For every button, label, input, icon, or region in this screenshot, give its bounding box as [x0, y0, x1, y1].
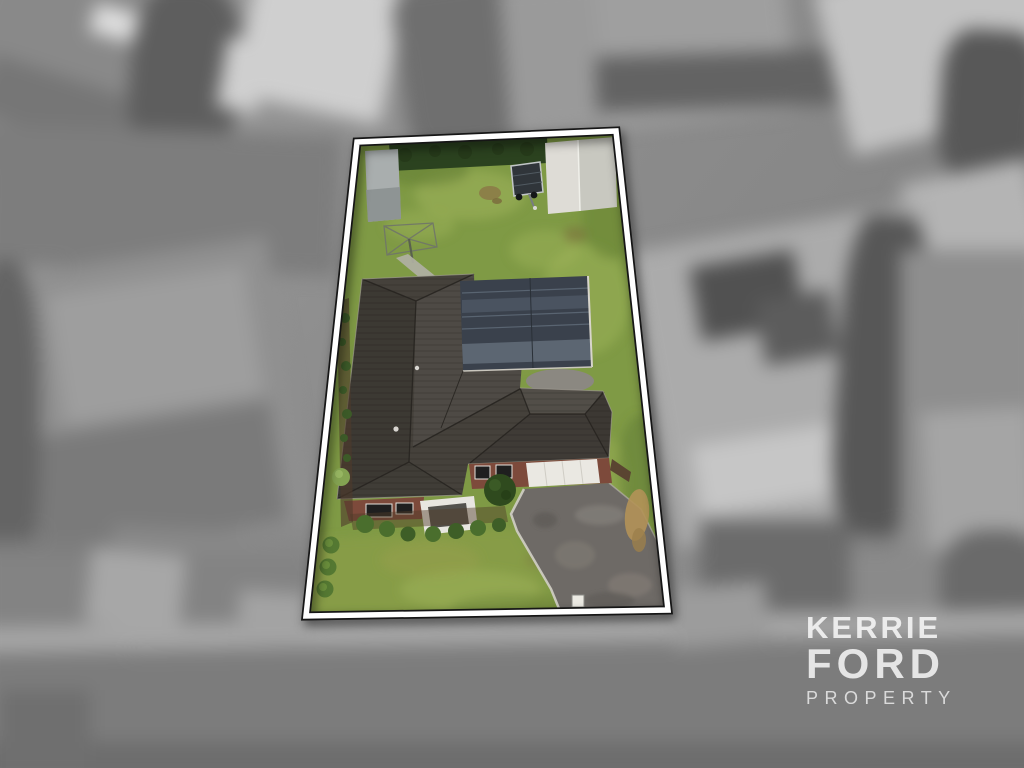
bush: [356, 515, 374, 533]
dirt-patch: [492, 198, 502, 204]
bush: [470, 520, 486, 536]
watermark-line-ford: FORD: [806, 645, 957, 684]
roof-vent: [415, 366, 419, 370]
ball-bush-highlight: [325, 539, 333, 547]
trailer-body: [511, 162, 543, 196]
driveway-patch: [575, 505, 625, 525]
hedge-texture: [458, 145, 472, 159]
bush: [401, 527, 416, 542]
grass-patch: [380, 542, 480, 578]
trailer-wheel: [531, 192, 538, 199]
shrub: [341, 361, 351, 371]
light-bush-highlight: [335, 470, 343, 478]
solar-conservatory: [460, 276, 592, 371]
bush: [425, 526, 441, 542]
shrub: [342, 409, 352, 419]
ball-bush-highlight: [319, 583, 327, 591]
bush: [448, 523, 464, 539]
roof-vent: [393, 426, 398, 431]
entry-bush-texture: [489, 479, 501, 491]
grass-patch: [563, 227, 587, 243]
shed-roof-right-face: [578, 137, 617, 211]
entry-bush: [484, 474, 516, 506]
garden-shed-small-shade: [366, 187, 401, 222]
sandy-patch-dark: [632, 528, 646, 552]
bush: [492, 518, 506, 532]
aerial-photo: KERRIE FORD PROPERTY: [0, 0, 1024, 768]
bush: [379, 521, 395, 537]
trailer-wheel: [516, 194, 523, 201]
ball-bush-highlight: [322, 561, 330, 569]
shed-roof-left-face: [545, 140, 580, 214]
agency-watermark: KERRIE FORD PROPERTY: [806, 611, 957, 709]
mailbox: [572, 595, 584, 607]
watermark-line-property: PROPERTY: [806, 689, 957, 709]
shrub: [340, 434, 348, 442]
dirt-patch: [479, 186, 501, 200]
driveway-patch: [533, 512, 557, 528]
hedge-texture: [398, 148, 412, 162]
window: [475, 466, 490, 479]
hedge-texture: [429, 145, 441, 157]
trailer-jockey-wheel: [533, 206, 537, 210]
hedge-texture: [492, 143, 504, 155]
entry-bush-texture: [501, 490, 511, 500]
driveway-patch: [585, 592, 635, 608]
hedge-texture: [520, 142, 534, 156]
shrub: [339, 386, 347, 394]
shrub: [343, 454, 351, 462]
driveway-patch: [555, 541, 595, 569]
